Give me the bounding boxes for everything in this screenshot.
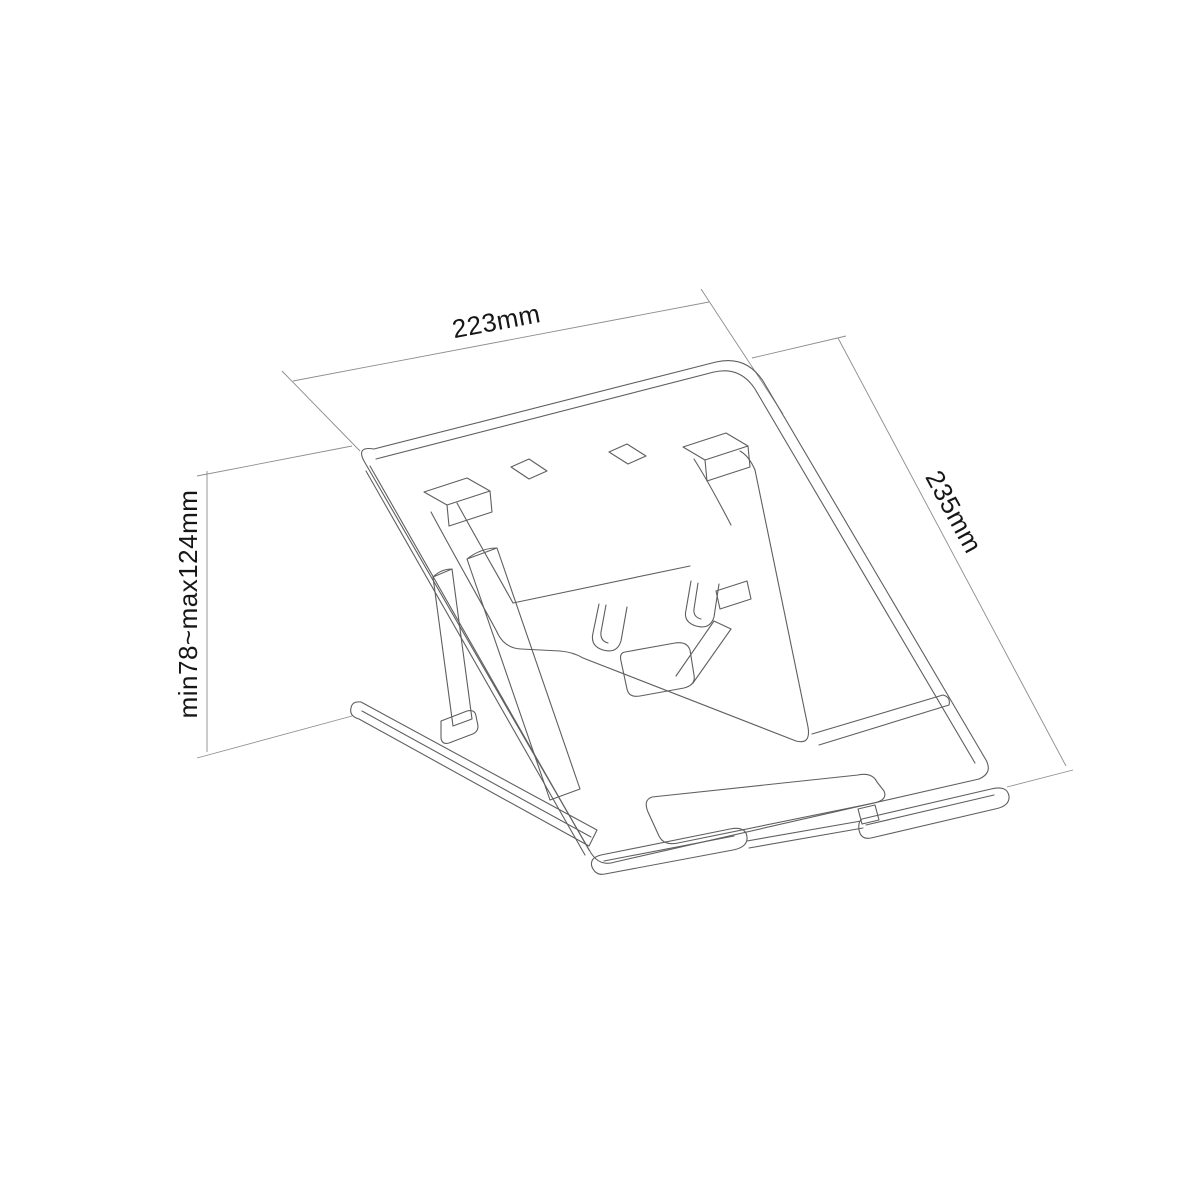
vent-hole-left — [511, 459, 547, 479]
plate-outline — [362, 361, 989, 864]
drawing-canvas: 223mm 235mm min78~max124mm — [0, 0, 1200, 1200]
front-lip-left-bar — [591, 828, 747, 874]
plate-inner-edge-top-right — [376, 371, 975, 763]
depth-extension-line-bottom — [1007, 770, 1073, 787]
kickstand-hinge-tab — [716, 581, 751, 609]
height-extension-line-top — [197, 446, 352, 476]
kickstand-strut — [676, 621, 731, 683]
plate-inner-edge-left2 — [366, 471, 585, 855]
laptop-stand-dimension-diagram: 223mm 235mm min78~max124mm — [0, 0, 1200, 1200]
cutout-left-arm-inner — [457, 503, 513, 603]
retaining-hook-left — [592, 604, 627, 651]
laptop-stand-drawing — [351, 361, 1009, 875]
leg-strut-rear — [467, 548, 580, 800]
depth-dimension-label: 235mm — [919, 465, 988, 558]
base-foot-pad — [441, 711, 478, 744]
front-lip-right-bar — [859, 788, 1009, 838]
base-rail — [351, 702, 597, 846]
plate-inner-edge-left — [370, 466, 589, 850]
width-extension-line-right — [701, 289, 783, 414]
cutout-cross-strip — [513, 566, 690, 603]
width-extension-line-left — [282, 371, 360, 451]
depth-extension-line-top — [752, 336, 846, 358]
cutout-right-arm-inner — [694, 459, 731, 525]
depth-dimension — [752, 336, 1073, 787]
vent-hole-right — [609, 444, 646, 464]
height-extension-line-bottom — [197, 716, 352, 758]
height-dimension — [197, 446, 352, 758]
width-dimension-label: 223mm — [450, 298, 543, 344]
kickstand-pad — [621, 643, 695, 697]
cutout-left-arm-outer — [431, 512, 497, 632]
retaining-hook-right — [685, 581, 719, 627]
latch-notch-slot — [812, 695, 949, 745]
clip-tab-right — [683, 433, 750, 481]
height-dimension-label: min78~max124mm — [173, 490, 203, 719]
